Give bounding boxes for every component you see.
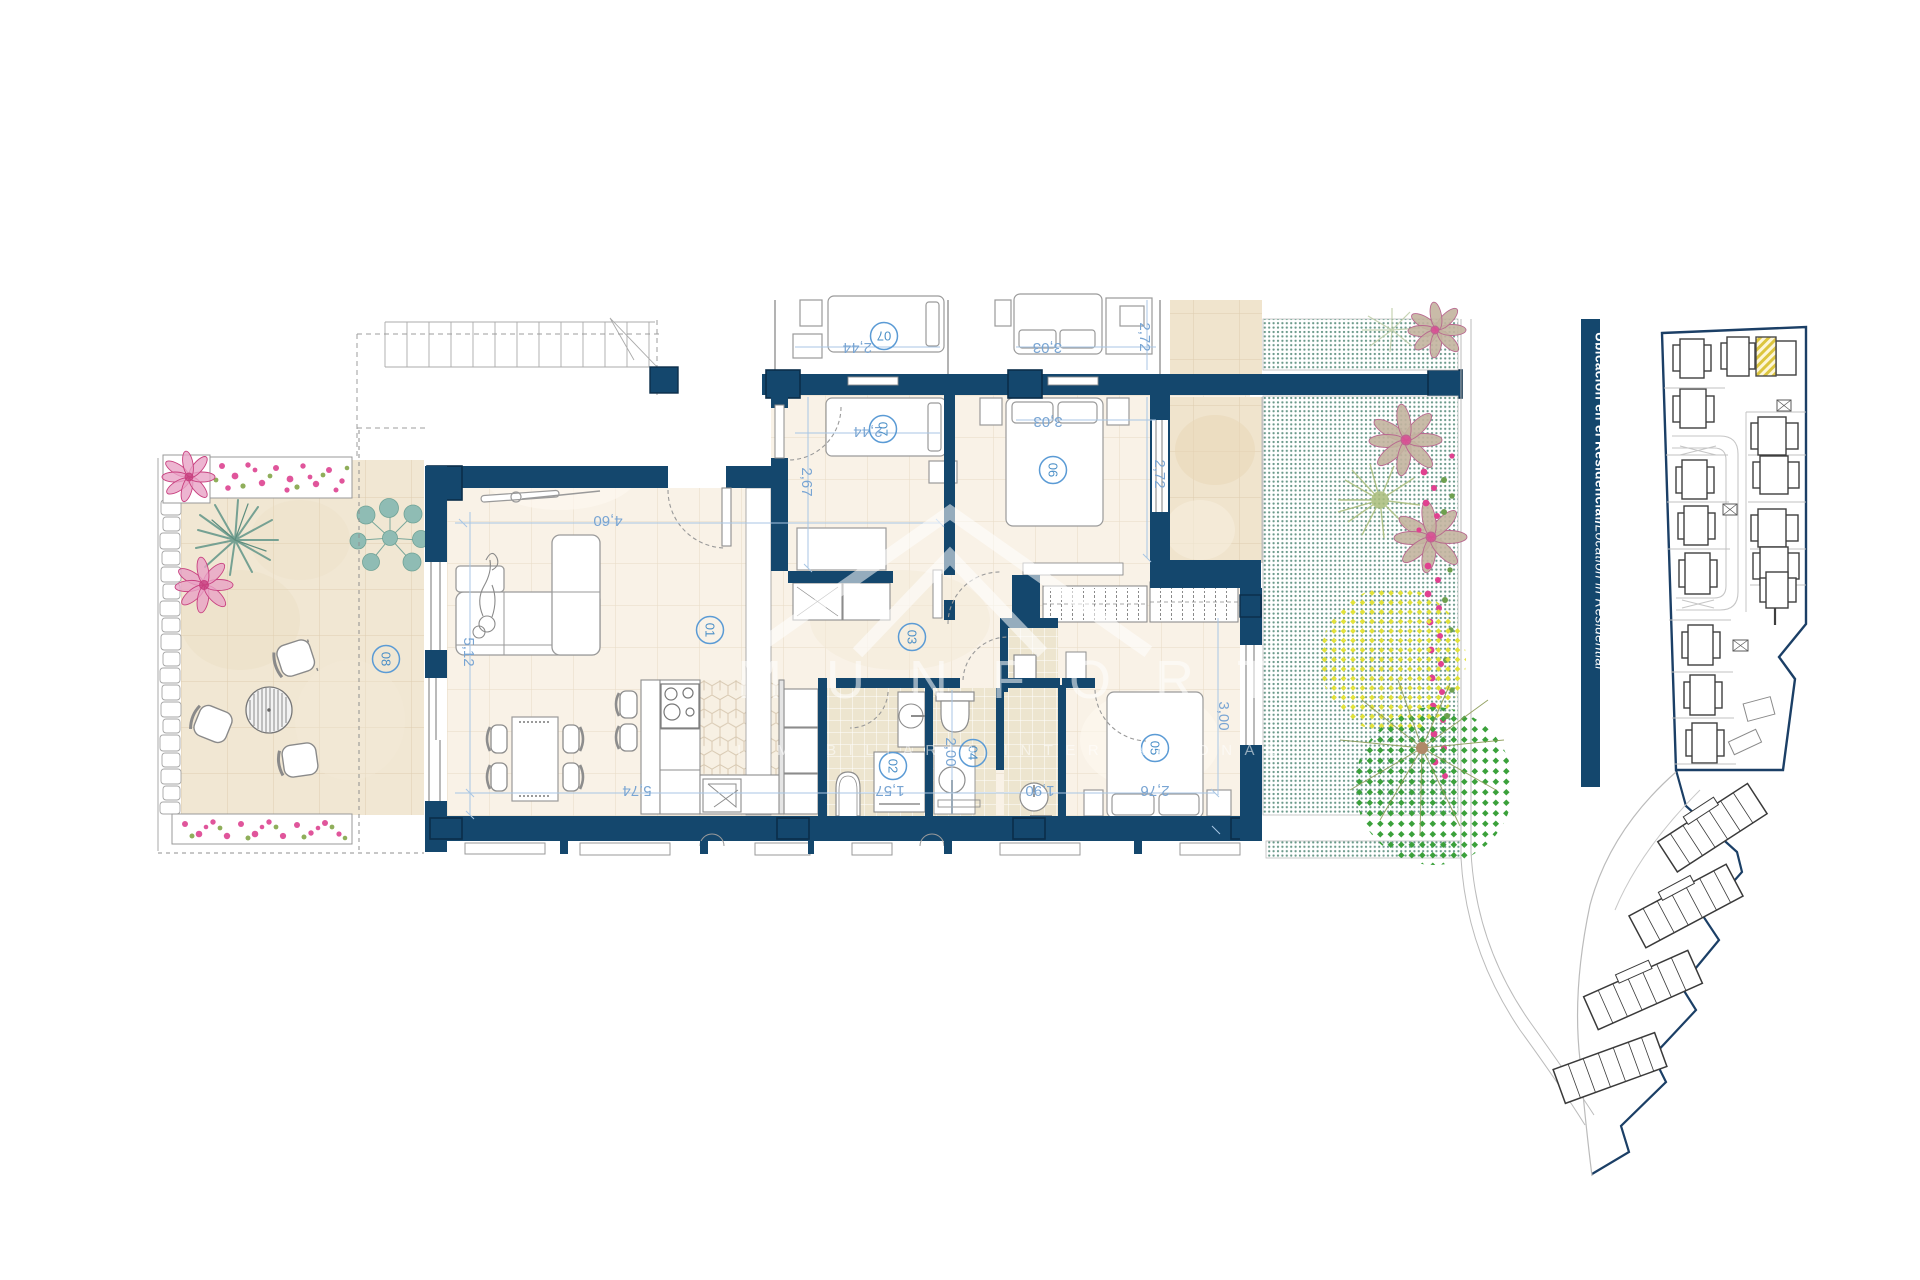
svg-text:2,44: 2,44 [843,339,872,356]
svg-text:5,12: 5,12 [460,637,477,666]
svg-text:1,57: 1,57 [875,782,904,799]
svg-text:1,90: 1,90 [1025,782,1054,799]
svg-text:2,67: 2,67 [798,467,815,496]
svg-text:Ubicación en el Residencial/Lo: Ubicación en el Residencial/Location in … [1593,332,1608,670]
svg-text:02: 02 [886,759,901,773]
svg-text:3,03: 3,03 [1033,339,1062,356]
svg-text:08: 08 [379,652,394,666]
svg-text:3,03: 3,03 [1033,413,1062,430]
svg-text:4,60: 4,60 [593,512,622,529]
svg-text:2,72: 2,72 [1136,322,1153,351]
svg-text:MUNFORT: MUNFORT [737,650,1314,710]
svg-text:INMOBILIARIA INTERNACIONAL: INMOBILIARIA INTERNACIONAL [737,742,1288,759]
svg-text:03: 03 [905,630,920,644]
svg-text:5,74: 5,74 [622,782,651,799]
svg-text:2,76: 2,76 [1140,782,1169,799]
svg-text:06: 06 [1046,463,1061,477]
svg-text:2,72: 2,72 [1151,459,1168,488]
svg-text:07: 07 [877,329,891,344]
svg-text:01: 01 [703,623,718,637]
svg-text:07: 07 [876,422,891,436]
